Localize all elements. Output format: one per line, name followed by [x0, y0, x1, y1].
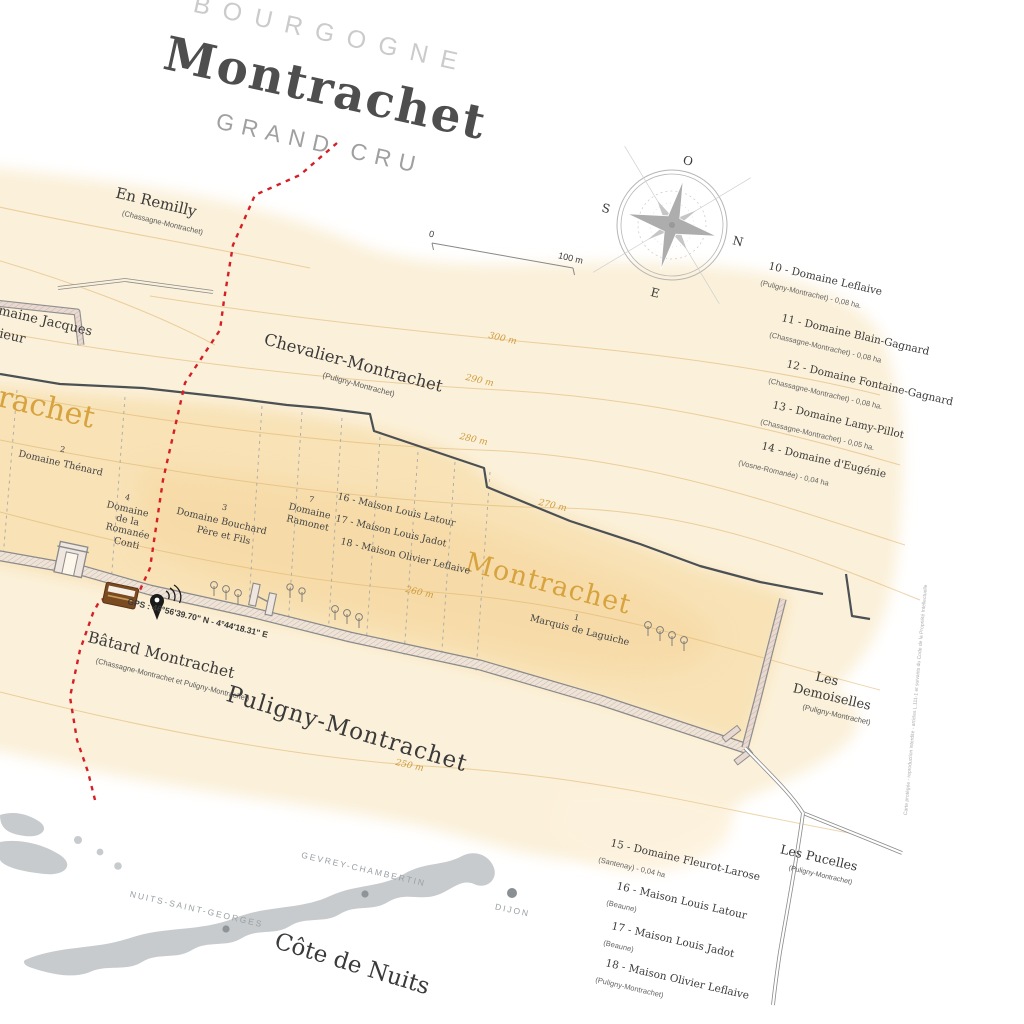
legend-bottom: 15 - Domaine Fleurot-Larose (Santenay) -…: [595, 837, 762, 1002]
town-dijon: DIJON: [494, 901, 531, 918]
legend-item-sub: (Beaune): [603, 938, 636, 954]
compass-north-label: N: [731, 233, 745, 249]
inset-silhouette: [24, 853, 495, 975]
gevrey-dot: [361, 890, 368, 897]
poster-montrachet-map: O N E S 0 100 m GEVREY-CHAMBERTIN NUITS-…: [0, 0, 1024, 1024]
inset-island: [0, 841, 67, 874]
legend-item-sub: (Beaune): [606, 898, 639, 914]
inset-speck: [114, 862, 122, 870]
inset-speck: [74, 836, 82, 844]
town-gevrey-chambertin: GEVREY-CHAMBERTIN: [300, 850, 427, 888]
dijon-dot: [507, 888, 517, 898]
scale-zero-label: 0: [428, 229, 435, 240]
compass-west-label: O: [681, 153, 694, 169]
compass-south-label: S: [600, 201, 611, 217]
region-cote-de-nuits: Côte de Nuits: [271, 928, 432, 1000]
legend-item-title: 17 - Maison Louis Jadot: [610, 920, 736, 960]
inset-map-cote-de-nuits: GEVREY-CHAMBERTIN NUITS-SAINT-GEORGES DI…: [0, 813, 531, 1000]
inset-speck: [97, 849, 104, 856]
legend-item-title: 18 - Maison Olivier Leflaive: [604, 957, 750, 1002]
map-canvas: O N E S 0 100 m GEVREY-CHAMBERTIN NUITS-…: [0, 0, 1024, 1024]
town-nuits-saint-georges: NUITS-SAINT-GEORGES: [129, 889, 264, 929]
inset-island: [0, 813, 44, 836]
legend-item-title: 16 - Maison Louis Latour: [615, 880, 749, 922]
fine-print-copyright: Carte protégée - reproduction interdite …: [903, 584, 929, 815]
nuits-dot: [222, 925, 229, 932]
title-block: BOURGOGNE Montrachet GRAND CRU: [159, 0, 492, 179]
